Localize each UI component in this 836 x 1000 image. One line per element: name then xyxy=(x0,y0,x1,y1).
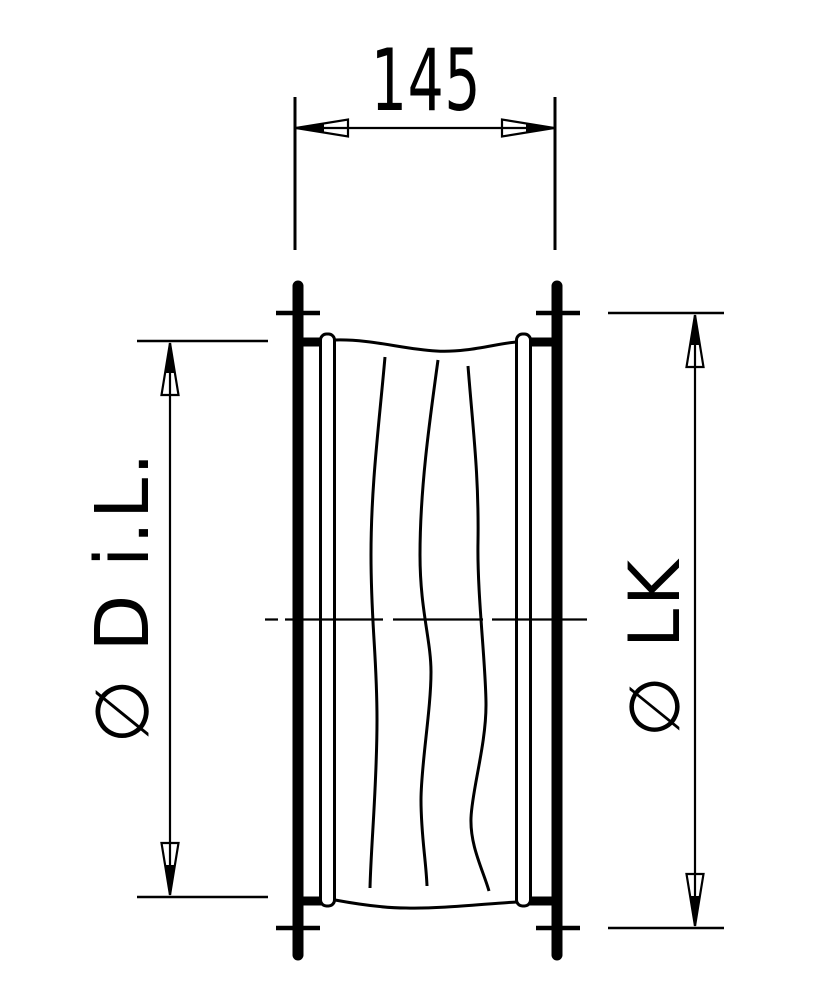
drawing-canvas: 145 ∅ D i.L. ∅ LK xyxy=(0,0,836,1000)
fabric-fold-line-middle xyxy=(420,360,438,886)
dimension-label-bolt-circle: ∅ LK xyxy=(614,557,696,737)
technical-drawing: 145 ∅ D i.L. ∅ LK xyxy=(0,0,836,1000)
length-dimension: 145 xyxy=(295,31,555,250)
inner-diameter-dimension: ∅ D i.L. xyxy=(80,341,268,897)
fabric-fold-line-right xyxy=(468,366,489,891)
dimension-label-inner-diameter: ∅ D i.L. xyxy=(80,450,166,743)
fabric-bottom-edge xyxy=(335,900,517,908)
fabric-top-edge xyxy=(335,340,517,351)
bolt-circle-dimension: ∅ LK xyxy=(608,313,724,928)
fabric-fold-line-left xyxy=(370,357,385,888)
connector-body xyxy=(265,286,587,955)
dimension-label-length: 145 xyxy=(371,31,481,131)
